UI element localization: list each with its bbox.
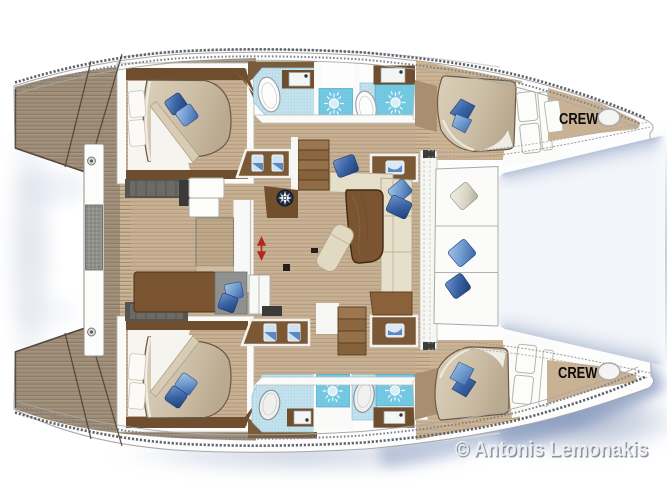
- svg-text:CREW: CREW: [558, 365, 598, 382]
- svg-text:© Antonis Lemonakis: © Antonis Lemonakis: [455, 438, 648, 461]
- svg-text:CREW: CREW: [559, 111, 599, 128]
